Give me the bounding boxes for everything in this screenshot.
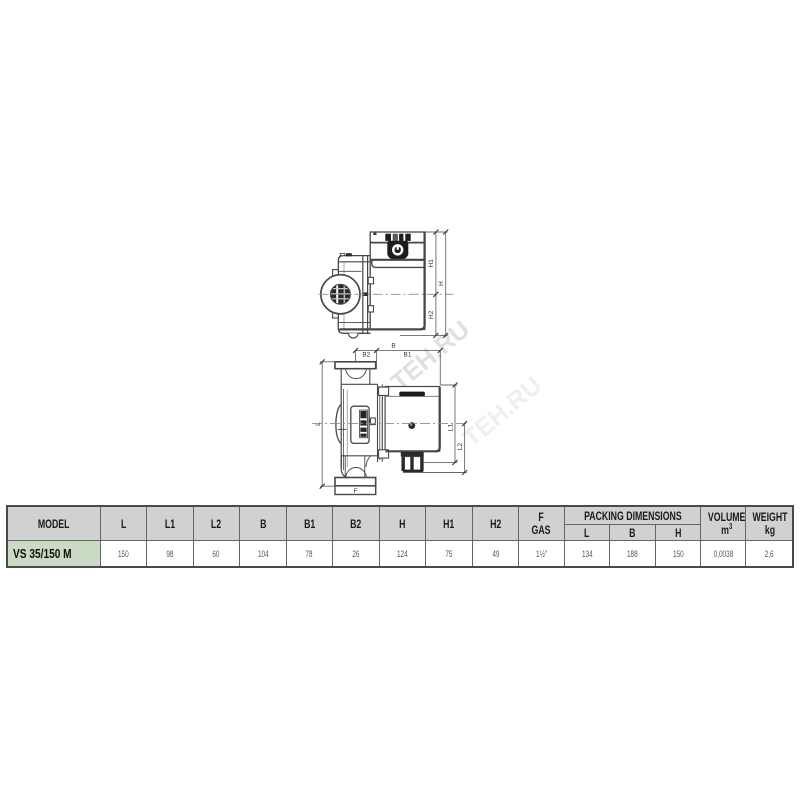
- svg-text:H: H: [438, 281, 445, 286]
- svg-text:B2: B2: [362, 352, 370, 359]
- svg-text:B: B: [391, 343, 395, 350]
- svg-text:H1: H1: [428, 259, 435, 268]
- svg-text:TEH.RU: TEH.RU: [386, 315, 475, 396]
- svg-text:L1: L1: [447, 424, 454, 432]
- svg-text:H2: H2: [428, 310, 435, 319]
- svg-text:F: F: [354, 488, 358, 495]
- svg-text:B1: B1: [404, 352, 412, 359]
- svg-text:TEH.RU: TEH.RU: [458, 371, 547, 452]
- svg-text:L2: L2: [457, 443, 464, 451]
- svg-text:L: L: [315, 422, 322, 426]
